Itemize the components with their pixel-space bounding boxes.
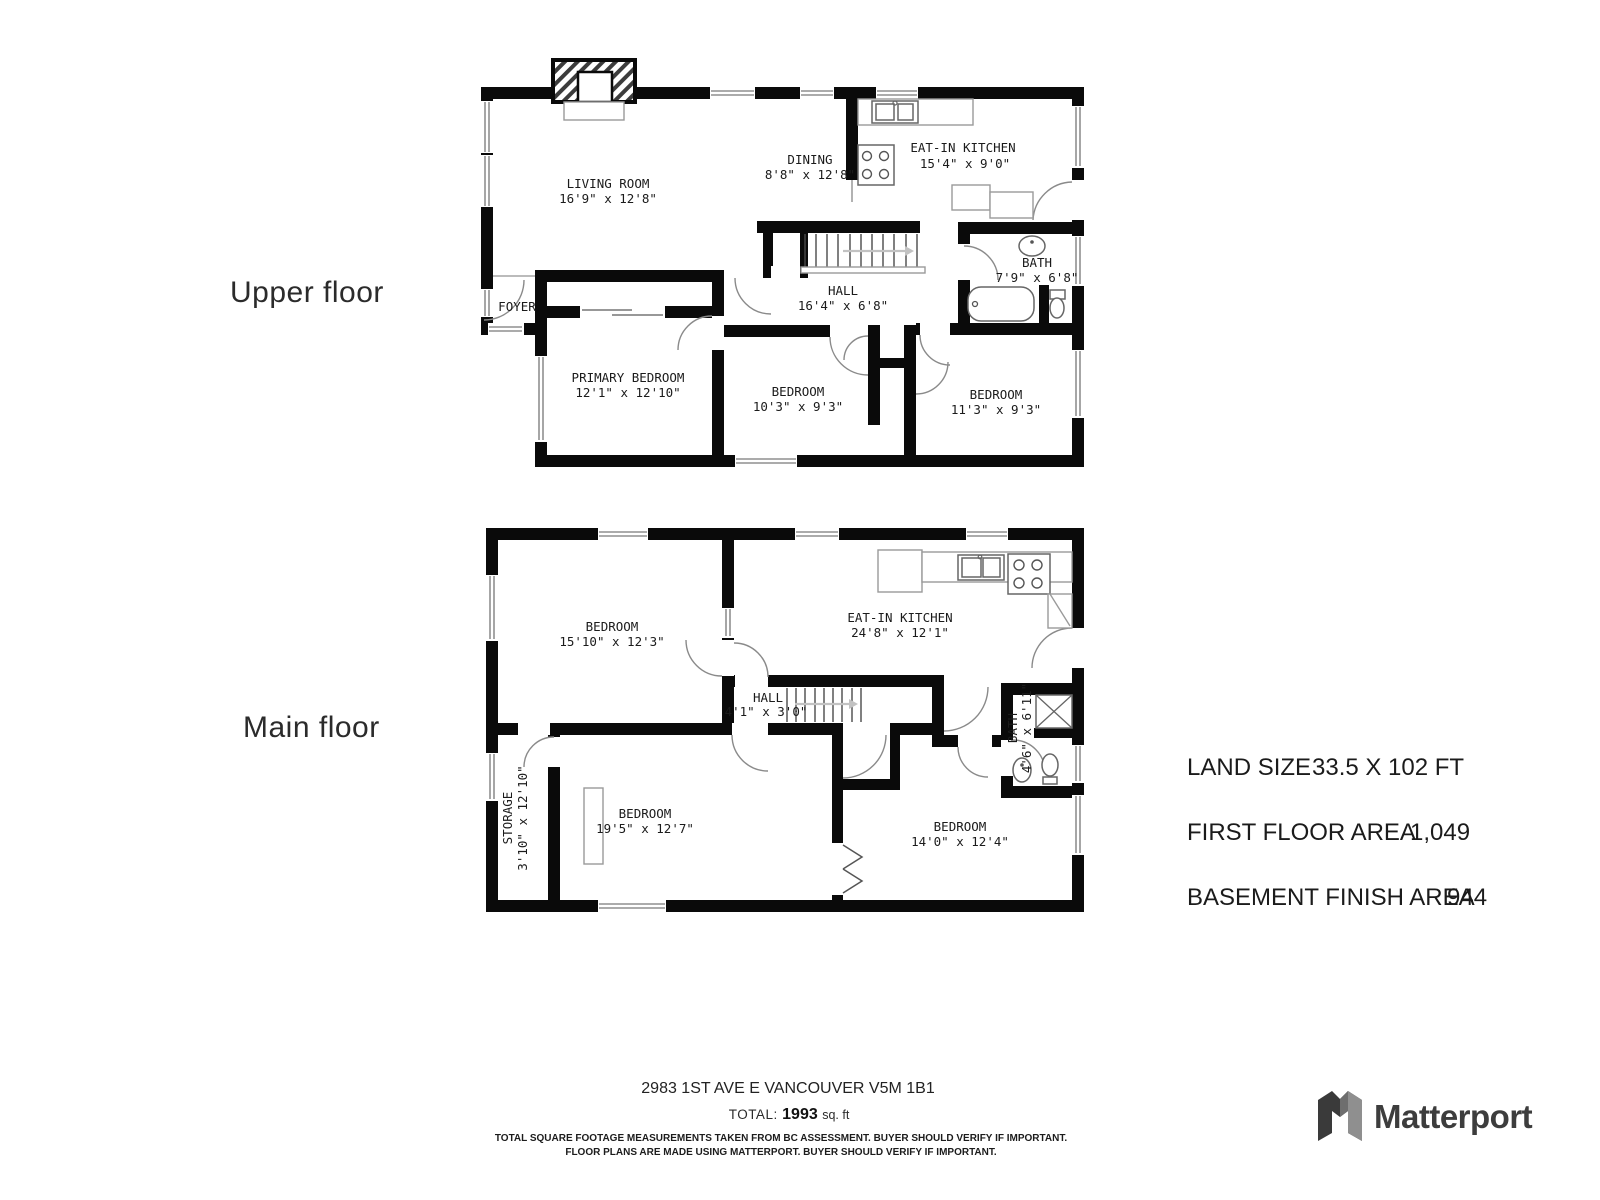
room-dims: 16'4" x 6'8": [798, 298, 888, 313]
fireplace-icon: [553, 60, 635, 120]
total-value: 1993: [782, 1106, 818, 1123]
bifold-door-icon: [843, 869, 862, 893]
first-floor-area-label: FIRST FLOOR AREA: [1187, 819, 1416, 846]
disclaimer-line-1: TOTAL SQUARE FOOTAGE MEASUREMENTS TAKEN …: [381, 1133, 1181, 1144]
basement-area-value: 944: [1447, 884, 1487, 912]
room-label: PRIMARY BEDROOM: [572, 370, 685, 385]
room-dims: 15'4" x 9'0": [920, 156, 1010, 171]
land-size-row: LAND SIZE 33.5 X 102 FT: [1187, 754, 1567, 782]
room-label: BATH: [1005, 713, 1020, 743]
matterport-logo-icon: [1318, 1091, 1362, 1141]
room-label: BEDROOM: [934, 819, 987, 834]
room-dims: 11'3" x 9'3": [951, 402, 1041, 417]
main-walls: [486, 528, 1084, 912]
bifold-door-icon: [843, 845, 862, 869]
room-label: LIVING ROOM: [567, 176, 650, 191]
room-dims: 10'3" x 9'3": [753, 399, 843, 414]
basement-area-label: BASEMENT FINISH AREA: [1187, 884, 1475, 911]
room-label: HALL: [753, 690, 783, 705]
room-label: FOYER: [498, 299, 536, 314]
stove-icon: [1008, 554, 1050, 594]
room-label: DINING: [787, 152, 832, 167]
property-address: 2983 1ST AVE E VANCOUVER V5M 1B1: [388, 1080, 1188, 1098]
basement-area-row: BASEMENT FINISH AREA 944: [1187, 884, 1567, 912]
floor-plan-drawing: LIVING ROOM 16'9" x 12'8" DINING 8'8" x …: [0, 0, 1600, 1200]
cabinet-icon: [990, 192, 1033, 218]
room-label: BEDROOM: [970, 387, 1023, 402]
room-dims: 15'10" x 12'3": [559, 634, 664, 649]
floorplan-page: Upper floor Main floor: [0, 0, 1600, 1200]
room-dims: 16'9" x 12'8": [559, 191, 657, 206]
main-doors: [524, 628, 1072, 893]
upper-stairs-icon: [801, 234, 925, 273]
disclaimer-line-2: FLOOR PLANS ARE MADE USING MATTERPORT. B…: [381, 1147, 1181, 1158]
room-dims: 4'6" x 6'11": [1019, 683, 1034, 773]
first-floor-area-value: 1,049: [1410, 819, 1470, 847]
room-label: HALL: [828, 283, 858, 298]
room-label: EAT-IN KITCHEN: [910, 140, 1015, 155]
land-size-value: 33.5 X 102 FT: [1312, 754, 1464, 782]
total-unit: sq. ft: [822, 1108, 849, 1122]
room-dims: 4'1" x 3'0": [725, 704, 808, 719]
room-label: STORAGE: [500, 792, 515, 845]
first-floor-area-row: FIRST FLOOR AREA 1,049: [1187, 819, 1567, 847]
room-dims: 19'5" x 12'7": [596, 821, 694, 836]
main-windows: [486, 528, 1084, 912]
land-size-label: LAND SIZE: [1187, 754, 1311, 781]
bath-sink-icon: [1019, 236, 1045, 256]
room-dims: 24'8" x 12'1": [851, 625, 949, 640]
room-label: BEDROOM: [772, 384, 825, 399]
room-dims: 12'1" x 12'10": [575, 385, 680, 400]
total-area: TOTAL: 1993 sq. ft: [389, 1106, 1189, 1124]
total-label: TOTAL:: [729, 1107, 778, 1122]
room-label: BEDROOM: [619, 806, 672, 821]
room-dims: 3'10" x 12'10": [515, 765, 530, 870]
fridge-icon: [878, 550, 922, 592]
main-floor-plan: BEDROOM 15'10" x 12'3" EAT-IN KITCHEN 24…: [486, 528, 1084, 912]
cabinet-icon: [952, 185, 990, 210]
room-label: EAT-IN KITCHEN: [847, 610, 952, 625]
room-dims: 7'9" x 6'8": [996, 270, 1079, 285]
room-dims: 8'8" x 12'8": [765, 167, 855, 182]
room-label: BEDROOM: [586, 619, 639, 634]
room-dims: 14'0" x 12'4": [911, 834, 1009, 849]
toilet-icon: [1042, 754, 1058, 776]
stove-icon: [858, 145, 894, 185]
upper-floor-plan: LIVING ROOM 16'9" x 12'8" DINING 8'8" x …: [481, 60, 1084, 467]
matterport-wordmark: Matterport: [1374, 1098, 1532, 1136]
room-label: BATH: [1022, 255, 1052, 270]
